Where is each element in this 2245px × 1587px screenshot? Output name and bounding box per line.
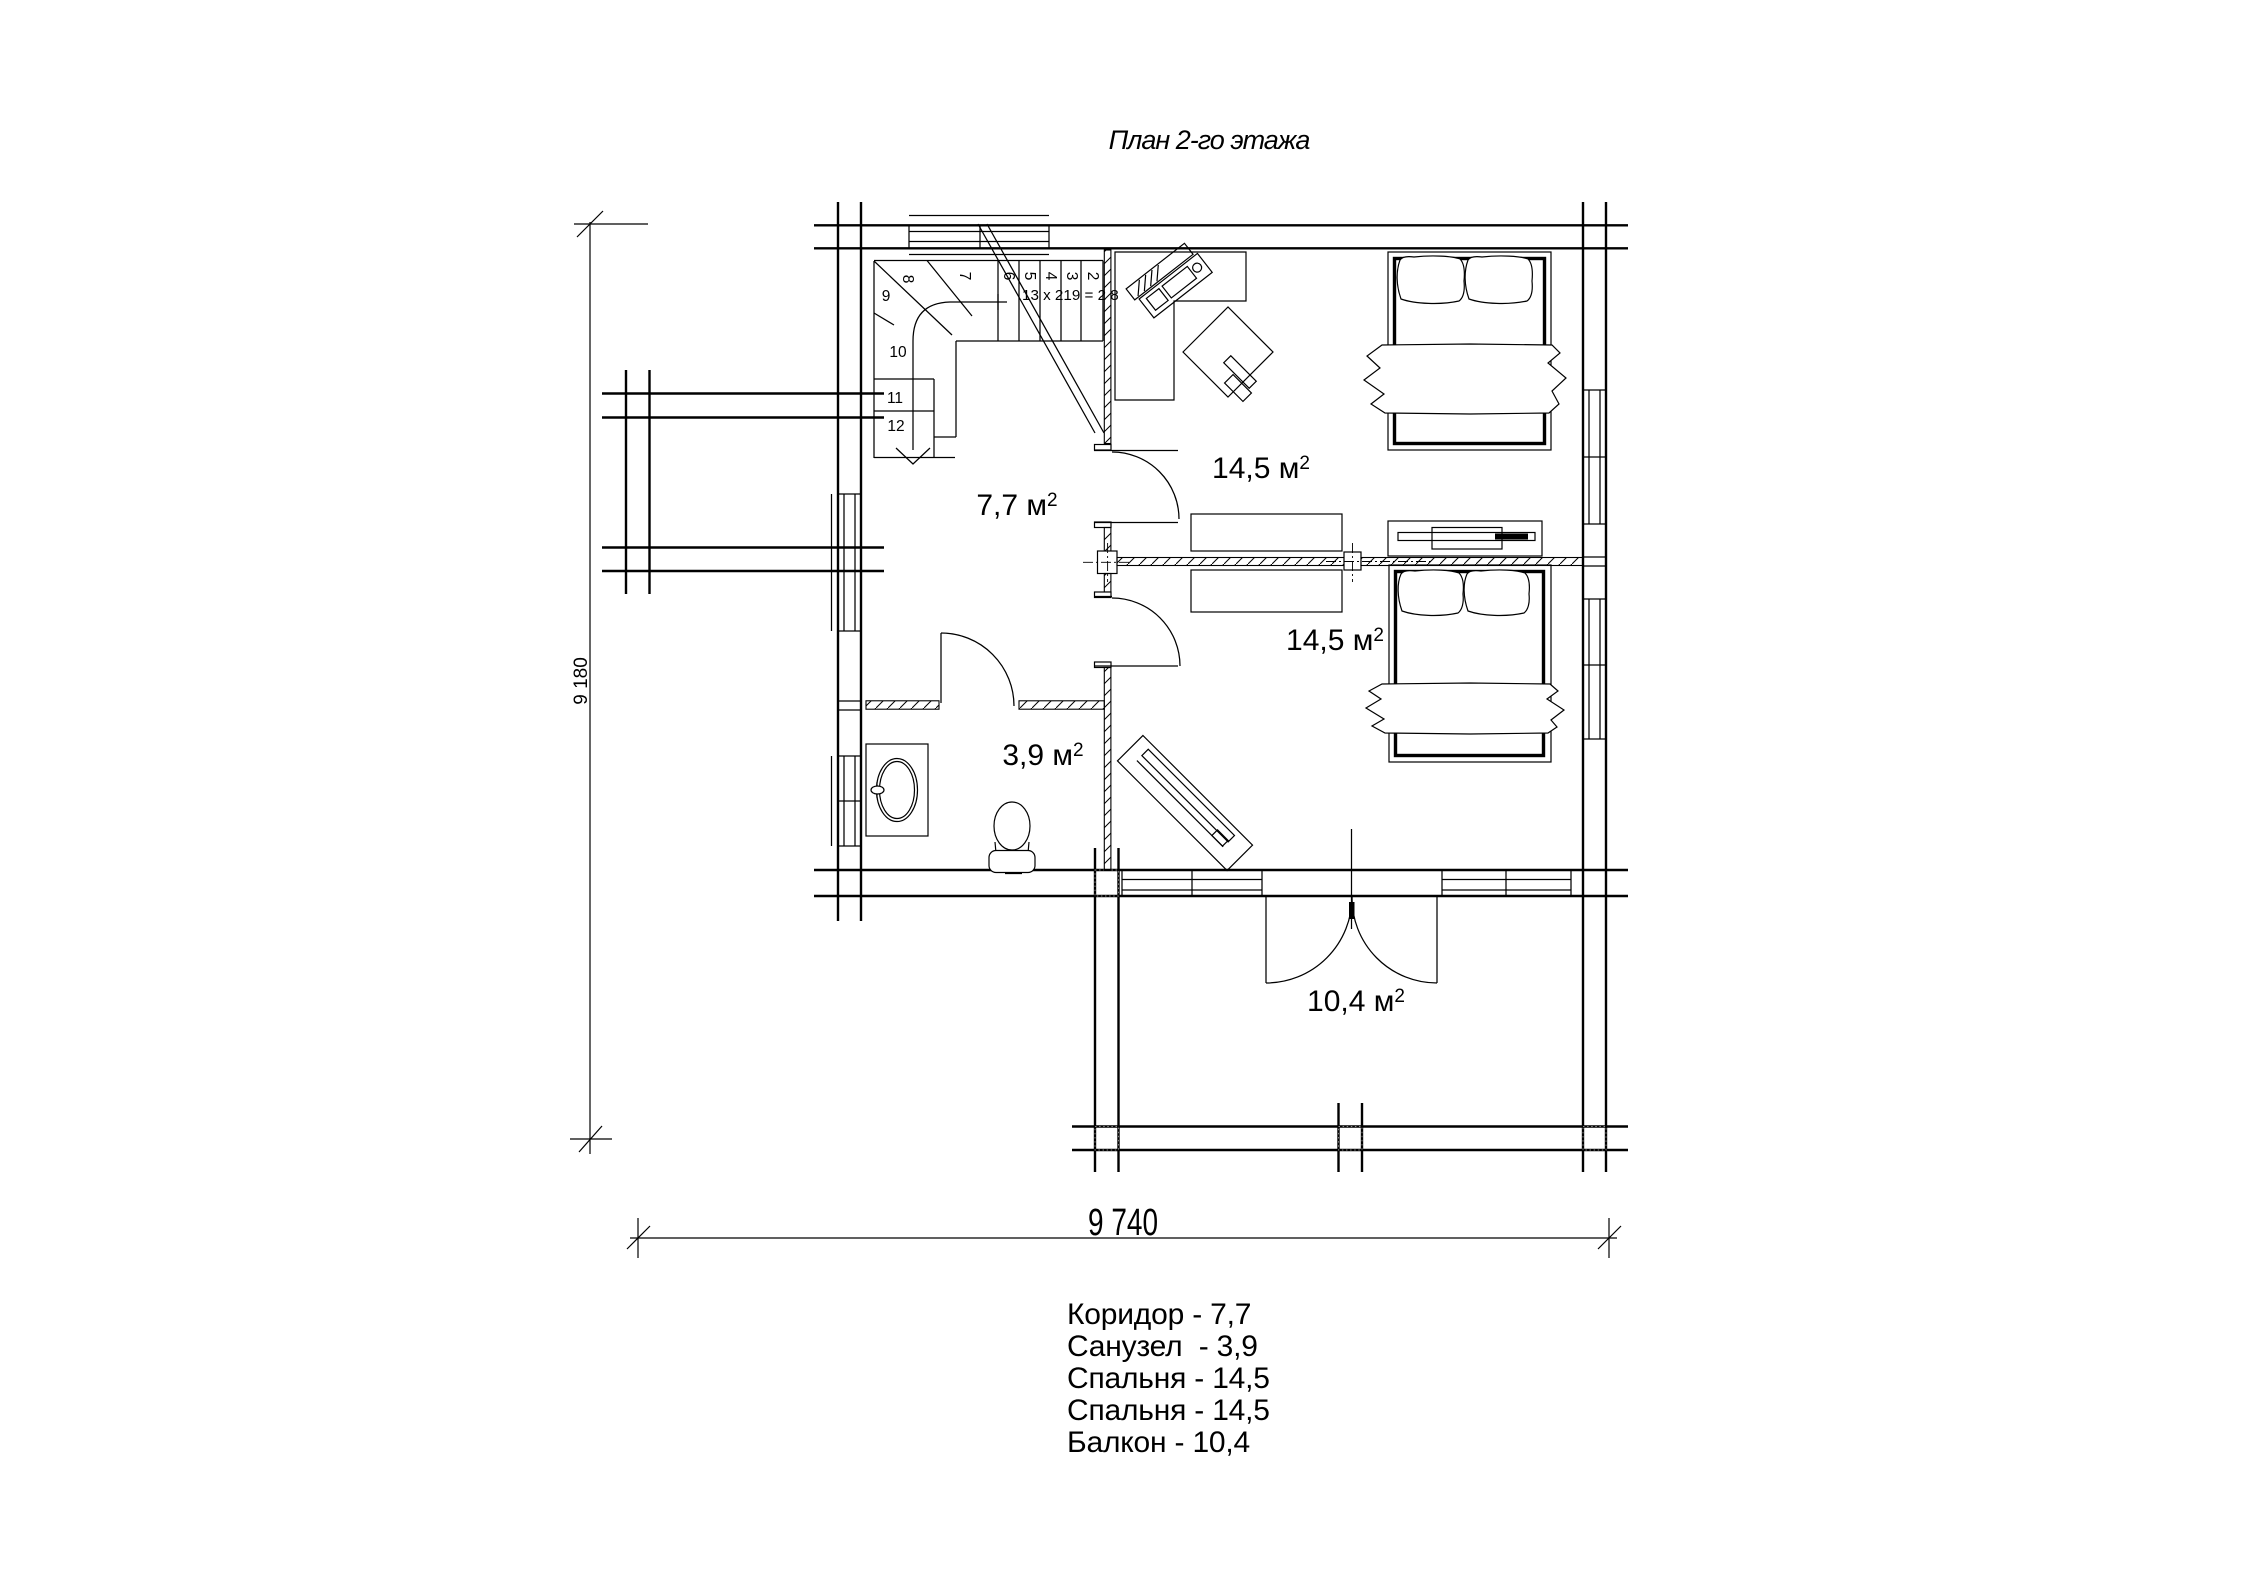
svg-text:12: 12: [887, 418, 904, 435]
svg-text:Санузел - 3,9: Санузел - 3,9: [1067, 1330, 1258, 1363]
svg-text:11: 11: [887, 390, 903, 407]
svg-text:14,5 м2: 14,5 м2: [1212, 452, 1310, 485]
svg-text:6: 6: [1000, 272, 1017, 281]
svg-text:Спальня - 14,5: Спальня - 14,5: [1067, 1362, 1270, 1395]
svg-text:3,9 м2: 3,9 м2: [1002, 739, 1083, 772]
svg-text:Коридор - 7,7: Коридор - 7,7: [1067, 1298, 1251, 1331]
svg-text:3: 3: [1063, 272, 1080, 281]
svg-text:8: 8: [899, 275, 916, 284]
svg-text:7: 7: [956, 272, 973, 281]
svg-text:5: 5: [1021, 272, 1038, 281]
svg-text:13 x 219 = 2 8: 13 x 219 = 2 8: [1022, 287, 1119, 304]
svg-text:Спальня - 14,5: Спальня - 14,5: [1067, 1394, 1270, 1427]
svg-text:9 740: 9 740: [1088, 1202, 1158, 1244]
svg-text:Балкон - 10,4: Балкон - 10,4: [1067, 1426, 1250, 1459]
svg-text:9 180: 9 180: [571, 657, 592, 705]
svg-text:2: 2: [1084, 272, 1101, 281]
svg-text:4: 4: [1042, 272, 1059, 281]
svg-text:10,4 м2: 10,4 м2: [1307, 985, 1405, 1018]
svg-text:9: 9: [882, 288, 891, 305]
svg-text:14,5 м2: 14,5 м2: [1286, 624, 1384, 657]
svg-text:7,7 м2: 7,7 м2: [976, 489, 1057, 522]
svg-text:10: 10: [889, 344, 907, 361]
svg-text:План 2-го этажа: План 2-го этажа: [1109, 125, 1311, 155]
